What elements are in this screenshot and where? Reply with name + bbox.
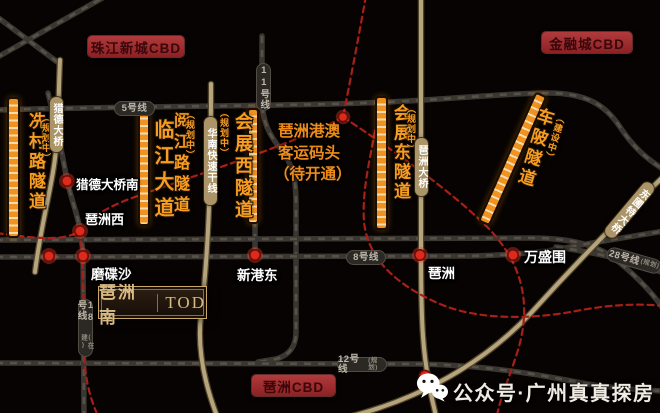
metro-pill-line12-status: (规划) — [368, 358, 386, 371]
station-label-xingang-east: 新港东 — [237, 264, 278, 284]
metro-pill-line11-label: 11号线 — [259, 65, 269, 110]
metro-pill-line5-label: 5号线 — [122, 104, 148, 114]
planned-red-dashed-lines — [0, 0, 660, 413]
station-dot-pazhou-west — [75, 226, 85, 236]
station-dot-modiesha — [78, 251, 88, 261]
metro-pill-line8: 8号线 — [346, 250, 386, 265]
tunnel-bar-huizhan-east — [375, 96, 388, 230]
station-label-wanshengwei: 万盛围 — [524, 247, 566, 267]
port-line1: 琶洲港澳 — [274, 121, 344, 143]
wechat-icon-svg — [416, 371, 448, 403]
station-dot-liede-south — [62, 176, 72, 186]
project-logo-divider — [157, 294, 158, 312]
map-canvas: 冼村路隧道 （规划中） 临江大道 阅江路隧道 （规划中） （规划中） 会展西隧道… — [0, 0, 660, 413]
project-logo: 琶洲南 TOD — [98, 286, 207, 319]
cbd-badge-pazhou: 琶洲CBD — [252, 375, 335, 396]
metro-pill-line18-status: (在建) — [79, 334, 92, 356]
metro-pill-line18: 18号线(在建) — [78, 299, 93, 357]
tunnel-bar-xiancun — [7, 97, 20, 238]
station-label-pazhou: 琶洲 — [428, 262, 455, 282]
project-logo-en: TOD — [165, 293, 206, 313]
cbd-badge-zhujiang-new-town: 珠江新城CBD — [88, 36, 184, 57]
station-label-pazhou-west: 琶洲西 — [85, 209, 124, 228]
project-logo-cn: 琶洲南 — [99, 278, 150, 328]
wechat-icon — [416, 371, 448, 403]
road-label-liede-bridge: 猎德大桥 — [50, 97, 63, 152]
cbd-badge-financial-city: 金融城CBD — [542, 32, 632, 53]
metro-pill-line11: 11号线 — [256, 63, 271, 111]
metro-pill-line12-label: 12号线 — [338, 355, 367, 374]
metro-and-road-lines — [0, 0, 660, 413]
tunnel-status-yuejiang: （规划中） — [184, 110, 197, 160]
road-label-pazhou-bridge: 琶洲大桥 — [415, 138, 428, 196]
footer-account-label: 公众号·广州真真探房 — [453, 377, 655, 406]
tunnel-label-huizhan-west: 会展西隧道 — [230, 112, 256, 222]
station-dot-pazhou — [415, 250, 425, 260]
station-dot-unlabeled — [44, 251, 54, 261]
port-terminal-label: 琶洲港澳 客运码头 （待开通） — [274, 121, 344, 186]
metro-pill-line18-label: 18号线 — [76, 300, 95, 333]
port-line2: 客运码头 — [274, 143, 344, 165]
metro-pill-line12: 12号线(规划) — [337, 357, 387, 372]
map-lines-layer — [0, 0, 660, 413]
metro-pill-line8-label: 8号线 — [353, 253, 379, 263]
station-dot-xingang-east — [250, 250, 260, 260]
road-label-huanan-expressway: 华南快速干线 — [204, 117, 217, 205]
metro-pill-line28-status: (规划) — [639, 259, 659, 271]
port-line3: （待开通） — [274, 164, 344, 186]
tan-roads — [35, 0, 660, 413]
station-label-liede-south: 猎德大桥南 — [76, 174, 139, 193]
metro-pill-line5: 5号线 — [114, 101, 155, 116]
station-dot-wanshengwei — [508, 250, 518, 260]
